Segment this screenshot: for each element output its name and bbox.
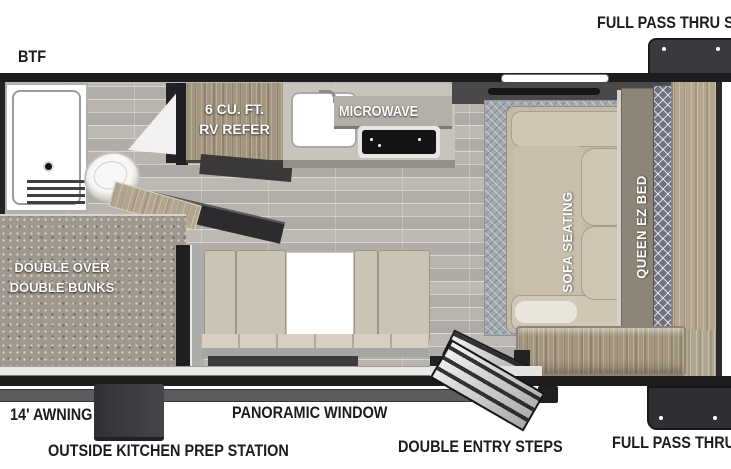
bunks-label-line2: DOUBLE BUNKS bbox=[10, 280, 115, 295]
queen-bed-label: QUEEN EZ BED bbox=[634, 167, 648, 287]
label-entry-steps: DOUBLE ENTRY STEPS bbox=[398, 438, 592, 455]
front-wall bbox=[0, 73, 731, 82]
dinette-table bbox=[208, 356, 358, 366]
stove bbox=[358, 126, 440, 158]
microwave-label-text: MICROWAVE bbox=[339, 103, 418, 120]
knob-dot bbox=[418, 138, 421, 141]
panoramic-window-pane bbox=[286, 252, 354, 342]
dinette-backrest-2 bbox=[236, 250, 286, 342]
refer-label: 6 CU. FT. RV REFER bbox=[186, 99, 283, 139]
bunk-divider-wall bbox=[176, 245, 190, 366]
shower-drain-icon bbox=[45, 163, 52, 170]
floorplan-image: DOUBLE OVER DOUBLE BUNKS 6 CU. FT. RV RE… bbox=[0, 0, 731, 469]
label-panoramic-window-text: PANORAMIC WINDOW bbox=[232, 404, 387, 421]
label-entry-steps-text: DOUBLE ENTRY STEPS bbox=[398, 438, 563, 455]
counter-base-shadow bbox=[283, 160, 455, 168]
sofa-label-text: SOFA SEATING bbox=[560, 191, 575, 292]
latch-dot bbox=[716, 47, 720, 51]
label-outside-kitchen: OUTSIDE KITCHEN PREP STATION bbox=[48, 442, 331, 459]
label-btf-text: BTF bbox=[18, 48, 46, 65]
knob-dot bbox=[370, 138, 373, 141]
double-bunks: DOUBLE OVER DOUBLE BUNKS bbox=[0, 214, 186, 370]
bunks-label: DOUBLE OVER DOUBLE BUNKS bbox=[0, 258, 124, 298]
queen-bed-label-text: QUEEN EZ BED bbox=[634, 175, 649, 279]
label-storage-bottom-text: FULL PASS THRU ST bbox=[612, 434, 731, 451]
trailer-body: DOUBLE OVER DOUBLE BUNKS 6 CU. FT. RV RE… bbox=[0, 73, 731, 386]
sofa-label: SOFA SEATING bbox=[560, 182, 574, 302]
cooktop bbox=[362, 130, 436, 154]
shower-step bbox=[27, 180, 85, 208]
label-awning-text: 14' AWNING bbox=[10, 406, 92, 423]
dinette-seat bbox=[202, 334, 428, 348]
right-white-margin bbox=[722, 82, 731, 376]
label-awning: 14' AWNING bbox=[10, 406, 107, 423]
label-storage-top-text: FULL PASS THRU STO bbox=[597, 14, 731, 31]
sofa-pillow bbox=[515, 301, 577, 323]
latch-dot bbox=[659, 416, 663, 420]
dinette-backrest-1 bbox=[204, 250, 236, 342]
label-panoramic-window: PANORAMIC WINDOW bbox=[232, 404, 415, 421]
awning-rail bbox=[488, 88, 600, 95]
bunks-label-line1: DOUBLE OVER bbox=[14, 260, 109, 275]
refrigerator: 6 CU. FT. RV REFER bbox=[186, 83, 283, 163]
dinette-backrest-4 bbox=[378, 250, 430, 342]
dinette-backrest-3 bbox=[354, 250, 378, 342]
refer-label-line1: 6 CU. FT. bbox=[205, 101, 264, 117]
shower bbox=[5, 83, 88, 212]
label-storage-bottom: FULL PASS THRU ST bbox=[612, 434, 731, 451]
label-btf: BTF bbox=[18, 48, 51, 65]
bathroom-door-open bbox=[128, 92, 180, 155]
knob-dot bbox=[378, 144, 381, 147]
bottom-trim bbox=[0, 366, 432, 376]
kitchen-counter: MICROWAVE bbox=[283, 84, 455, 163]
latch-dot bbox=[662, 47, 666, 51]
microwave-label: MICROWAVE bbox=[339, 103, 432, 120]
latch-dot bbox=[713, 416, 717, 420]
label-outside-kitchen-text: OUTSIDE KITCHEN PREP STATION bbox=[48, 442, 289, 459]
bed-runner bbox=[653, 85, 673, 340]
sofa-arm-top bbox=[511, 111, 627, 147]
refer-label-line2: RV REFER bbox=[199, 121, 270, 137]
label-storage-top: FULL PASS THRU STO bbox=[597, 14, 731, 31]
rear-pass-thru-storage-box bbox=[647, 386, 731, 430]
